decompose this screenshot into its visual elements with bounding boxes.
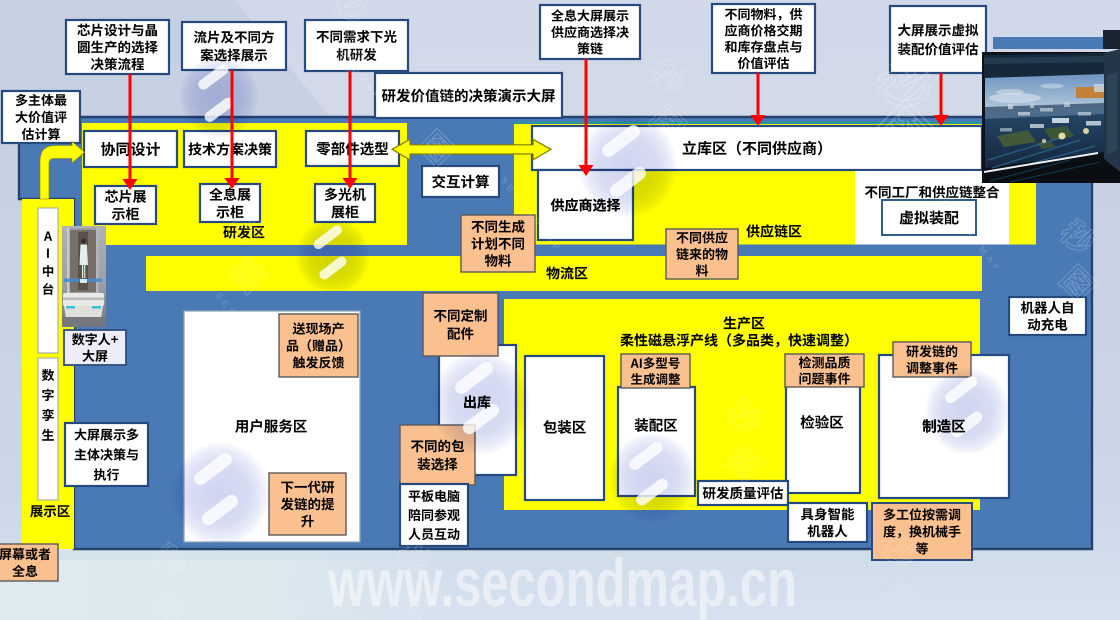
svg-text:www.secondmap.cn: www.secondmap.cn	[327, 545, 797, 620]
